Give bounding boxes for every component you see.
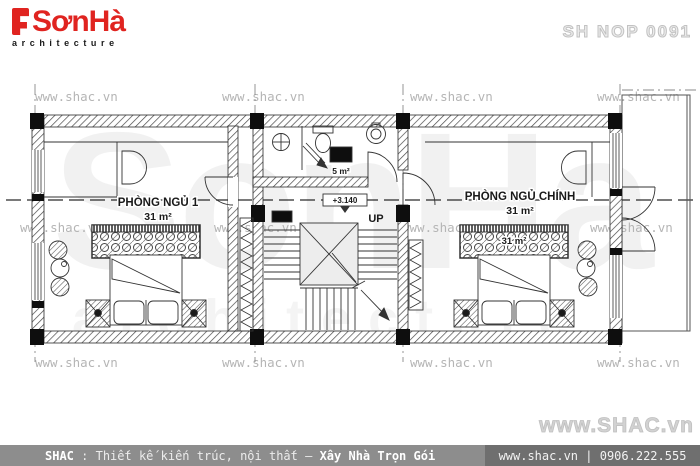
balcony	[622, 95, 690, 331]
level-marker-value: +3.140	[333, 196, 358, 205]
watermark-text: www.shac.vn	[35, 89, 118, 104]
stool-icon	[578, 241, 596, 259]
pillow	[114, 301, 144, 324]
shower-arrow-icon	[317, 158, 327, 168]
chair-icon	[562, 151, 587, 184]
footer-services: Thiết kế kiến trúc, nội thất	[96, 449, 298, 463]
pillow	[482, 301, 512, 324]
room-1-area: 31 m²	[144, 211, 172, 223]
footer-bar: SHAC : Thiết kế kiến trúc, nội thất – Xâ…	[0, 445, 700, 466]
footer-contact: www.shac.vn | 0906.222.555	[485, 445, 700, 466]
room-1-name: PHÒNG NGỦ 1	[118, 196, 199, 209]
watermark-text: www.shac.vn	[222, 89, 305, 104]
watermark-text: www.shac.vn	[410, 355, 493, 370]
footer-website[interactable]: www.shac.vn	[499, 449, 578, 463]
footer-separator: :	[74, 449, 96, 463]
footer-tagline-bold: Xây Nhà Trọn Gói	[320, 449, 436, 463]
page: SonHa architecture SơnHà architecture SH…	[0, 0, 700, 466]
pillow	[148, 301, 178, 324]
bath-label-block	[330, 147, 352, 162]
doors	[205, 152, 655, 251]
stool-icon	[49, 241, 67, 259]
watermark-text: www.shac.vn	[410, 89, 493, 104]
watermark-text: www.shac.vn	[597, 355, 680, 370]
bathroom-area: 5 m²	[332, 166, 350, 176]
watermark-text: www.shac.vn	[597, 89, 680, 104]
footer-phone: 0906.222.555	[600, 449, 687, 463]
floor-plan-drawing: www.shac.vn www.shac.vn www.shac.vn www.…	[0, 0, 700, 466]
toilet-bowl-icon	[316, 134, 331, 153]
footer-brand: SHAC	[45, 449, 74, 463]
stool-icon	[51, 278, 69, 296]
side-table-icon	[577, 259, 595, 277]
footer-dash: –	[298, 449, 320, 463]
site-watermark-large: www.SHAC.vn	[539, 414, 694, 438]
footer-tagline: SHAC : Thiết kế kiến trúc, nội thất – Xâ…	[0, 445, 485, 466]
watermark-text: www.shac.vn	[222, 355, 305, 370]
bathroom	[273, 123, 386, 170]
headboard-area-label: 31 m²	[502, 236, 527, 247]
chair-icon	[122, 151, 147, 184]
watermark-text: www.shac.vn	[590, 220, 673, 235]
room-2-name: PHÒNG NGỦ CHÍNH	[465, 190, 576, 203]
stairs-up-label: UP	[368, 213, 383, 225]
pillow	[516, 301, 546, 324]
stool-icon	[579, 278, 597, 296]
level-marker: +3.140	[323, 194, 367, 213]
watermark-text: www.shac.vn	[35, 355, 118, 370]
side-table-icon	[51, 259, 69, 277]
footer-divider: |	[578, 449, 600, 463]
stair-label-block	[272, 211, 292, 222]
room-2-area: 31 m²	[506, 205, 534, 217]
